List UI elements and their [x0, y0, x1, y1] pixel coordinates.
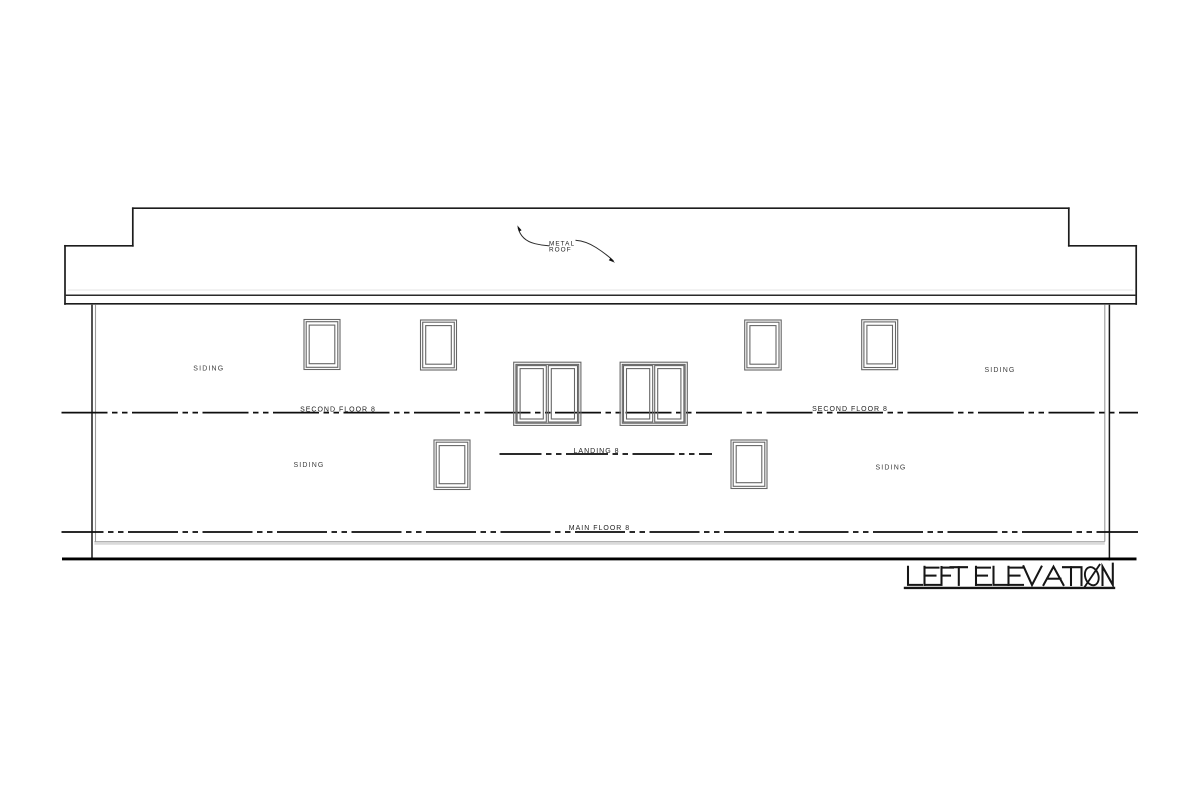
svg-text:SECOND FLOOR 8: SECOND FLOOR 8 — [300, 406, 376, 413]
svg-text:LANDING 8: LANDING 8 — [574, 448, 620, 455]
svg-text:MAIN FLOOR 8: MAIN FLOOR 8 — [569, 525, 630, 532]
svg-text:SIDING: SIDING — [193, 366, 224, 373]
svg-text:SECOND FLOOR 8: SECOND FLOOR 8 — [812, 406, 888, 413]
svg-text:SIDING: SIDING — [875, 464, 906, 471]
svg-text:SIDING: SIDING — [293, 462, 324, 469]
svg-text:ROOF: ROOF — [549, 246, 572, 253]
svg-text:SIDING: SIDING — [984, 367, 1015, 374]
